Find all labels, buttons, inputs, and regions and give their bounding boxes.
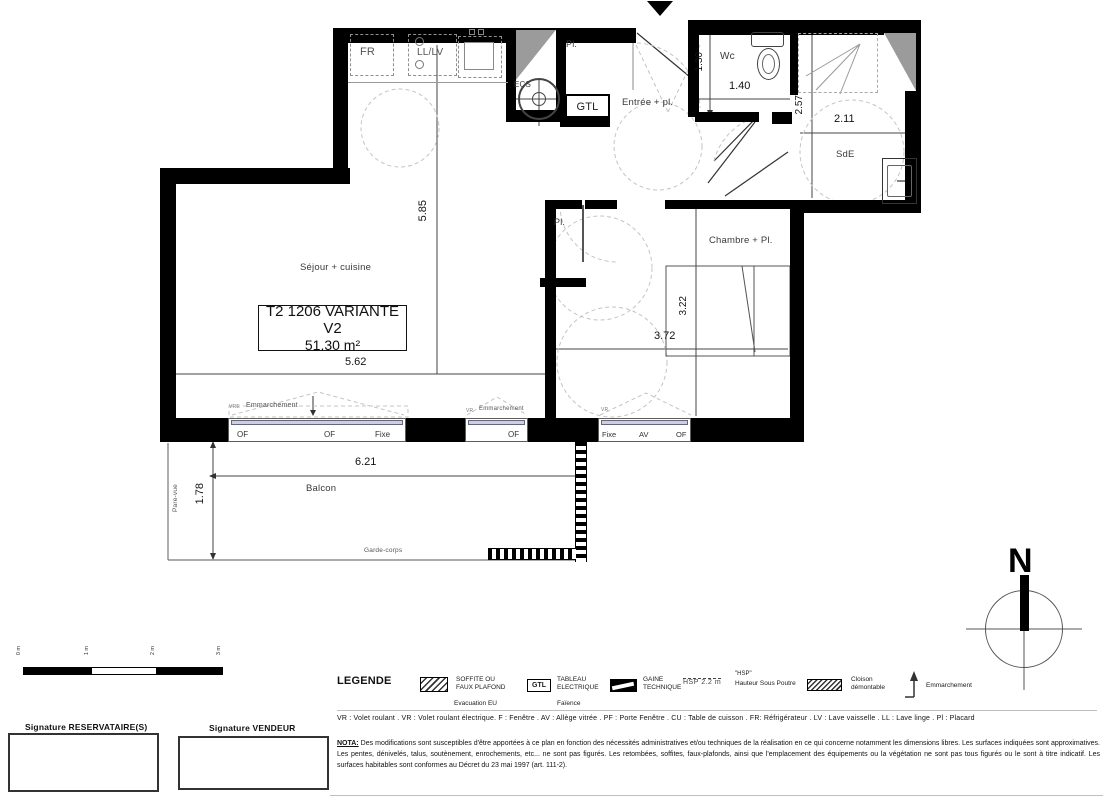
legend-tableau-label: TABLEAU (557, 676, 586, 683)
kitchen-sink (464, 42, 494, 70)
divider (337, 710, 1097, 711)
dim-sejour-w: 5.62 (345, 356, 366, 368)
faucet-icon (469, 29, 475, 35)
burner-icon (415, 60, 424, 69)
scale-bar-segment (91, 667, 157, 675)
burner-icon (415, 37, 424, 46)
legend-emmarchement-label: Emmarchement (926, 682, 972, 689)
counter-edge (348, 82, 508, 83)
dim-sejour-h: 5.85 (417, 200, 429, 221)
unit-name: T2 1206 VARIANTE V2 (259, 303, 406, 337)
dim-balcon-w: 6.21 (355, 456, 376, 468)
wall (665, 200, 793, 209)
room-label-wc: Wc (720, 51, 735, 62)
room-label-sde: SdE (836, 149, 855, 160)
window-pane-label: OF (508, 430, 519, 439)
nota-label: NOTA: (337, 740, 359, 747)
faucet-icon (478, 29, 484, 35)
gaine-technique (516, 30, 556, 80)
window1-motor-label: VRE (229, 404, 240, 410)
gaine-technique (884, 33, 916, 91)
window2-motor-label: VR (466, 408, 473, 414)
fridge-label: FR (360, 46, 375, 58)
room-label-placard-entree: Pl. (566, 39, 577, 49)
legend-cloison-label: Cloison (851, 676, 873, 683)
legend-faience-label: Faïence (557, 700, 581, 707)
balcony-separator (575, 442, 587, 562)
legend-cloison-label-2: démontable (851, 684, 885, 691)
window-pane-label: OF (324, 430, 335, 439)
nota-text: Des modifications sont susceptibles d'êt… (337, 740, 1100, 769)
shower-outline (798, 33, 878, 93)
gaine-symbol-band (612, 682, 634, 690)
legend-soffit-label: SOFFITE OU (456, 676, 495, 683)
toilet-tank (751, 32, 784, 47)
scale-tick: 1 m (84, 646, 90, 655)
bathroom-sink-basin (887, 165, 912, 197)
entrance-arrow (647, 1, 673, 16)
dim-wc-h: 1.30 (694, 52, 705, 71)
window-pane-label: OF (676, 430, 686, 439)
wall (772, 112, 792, 124)
wall (406, 418, 467, 442)
dim-wc-w: 1.40 (729, 80, 750, 92)
dim-sde-w: 2.11 (834, 113, 855, 125)
scale-tick: 3 m (216, 646, 222, 655)
wall (333, 28, 348, 178)
room-label-chambre: Chambre + Pl. (709, 235, 773, 246)
abbreviations-line: VR : Volet roulant . VR : Volet roulant … (337, 715, 975, 722)
window-pane-label: Fixe (602, 430, 616, 439)
window-glazing (468, 420, 525, 425)
room-label-balcon: Balcon (306, 483, 336, 494)
window3-motor-label: VR (601, 407, 608, 413)
legend-title: LEGENDE (337, 675, 392, 687)
wall (688, 35, 699, 117)
legend-tableau-label-2: ELECTRIQUE (557, 684, 599, 691)
electrical-box: GTL (565, 94, 610, 120)
window-pane-label: OF (237, 430, 248, 439)
water-heater-icon-inner (532, 92, 546, 106)
signature-vendeur-box[interactable] (178, 736, 329, 790)
legend-hsp-label-2: Hauteur Sous Poutre (735, 680, 796, 687)
room-label-entree: Entrée + pl. (622, 97, 673, 108)
wall (790, 200, 804, 442)
signature-reservataire-box[interactable] (8, 733, 159, 792)
dim-chambre-w: 3.72 (654, 330, 675, 342)
legend-gaine-label: GAINE (643, 676, 663, 683)
legend-hsp-label: "HSP" (735, 671, 752, 677)
signature-vendeur-label: Signature VENDEUR (209, 723, 296, 733)
legend-gaine-label-2: TECHNIQUE (643, 684, 681, 691)
balcony-separator (488, 548, 576, 560)
water-heater-label: ECS (514, 80, 531, 89)
electrical-box-label: GTL (577, 101, 599, 113)
window-glazing (601, 420, 688, 425)
gtl-symbol-label: GTL (532, 682, 546, 689)
window1-step-label: Emmarchement (246, 402, 298, 409)
window-glazing (231, 420, 403, 425)
wall (540, 278, 586, 287)
washer-label: LL/LV (417, 47, 443, 58)
room-label-sejour: Séjour + cuisine (300, 262, 371, 273)
toilet-bowl-inner (762, 54, 775, 74)
window2-step-label: Emmarchement (479, 406, 524, 412)
window-pane-label: AV (639, 430, 648, 439)
wall (506, 28, 516, 120)
floor-plan-sheet: FR LL/LV ECS GTL Séjour + cuisine Chambr… (0, 0, 1103, 800)
window-pane-label: Fixe (375, 430, 390, 439)
scale-tick: 0 m (16, 646, 22, 655)
pare-vue-label: Pare-vue (172, 484, 179, 512)
wall (695, 112, 759, 122)
divider (330, 795, 1103, 796)
wall (691, 418, 804, 442)
soffit-symbol (420, 677, 448, 692)
dim-balcon-d: 1.78 (194, 483, 206, 504)
window-sejour-2: OF (465, 418, 528, 442)
unit-title-box: T2 1206 VARIANTE V2 51.30 m² (258, 305, 407, 351)
legend-soffit-label-2: FAUX PLAFOND (456, 684, 505, 691)
gaine-symbol (610, 679, 637, 692)
scale-bar-segment (23, 667, 91, 675)
window-chambre: Fixe AV OF (598, 418, 691, 442)
compass-needle (1020, 575, 1029, 631)
hsp-sample: HSP 2.2 m (683, 678, 721, 686)
unit-area: 51.30 m² (259, 337, 406, 353)
room-label-placard-chambre: Pl. (554, 217, 565, 227)
wall (790, 30, 798, 95)
dim-sde-h: 2.57 (794, 95, 805, 114)
scale-bar-segment (157, 667, 223, 675)
nota-block: NOTA: Des modifications sont susceptible… (337, 739, 1100, 772)
scale-tick: 2 m (150, 646, 156, 655)
wall (160, 418, 230, 442)
wall (160, 168, 176, 442)
dim-chambre-h: 3.22 (678, 296, 689, 315)
wall (160, 168, 350, 184)
wall (585, 200, 617, 209)
gtl-symbol: GTL (527, 679, 551, 692)
cloison-symbol (807, 679, 842, 691)
signature-reservataire-label: Signature RESERVATAIRE(S) (25, 722, 147, 732)
wall (528, 418, 598, 442)
compass-north-label: N (1008, 542, 1033, 581)
wall (545, 200, 556, 420)
window-sejour: OF OF Fixe (228, 418, 406, 442)
garde-corps-label: Garde-corps (364, 547, 402, 554)
legend-evacuation-label: Evacuation EU (454, 700, 497, 707)
